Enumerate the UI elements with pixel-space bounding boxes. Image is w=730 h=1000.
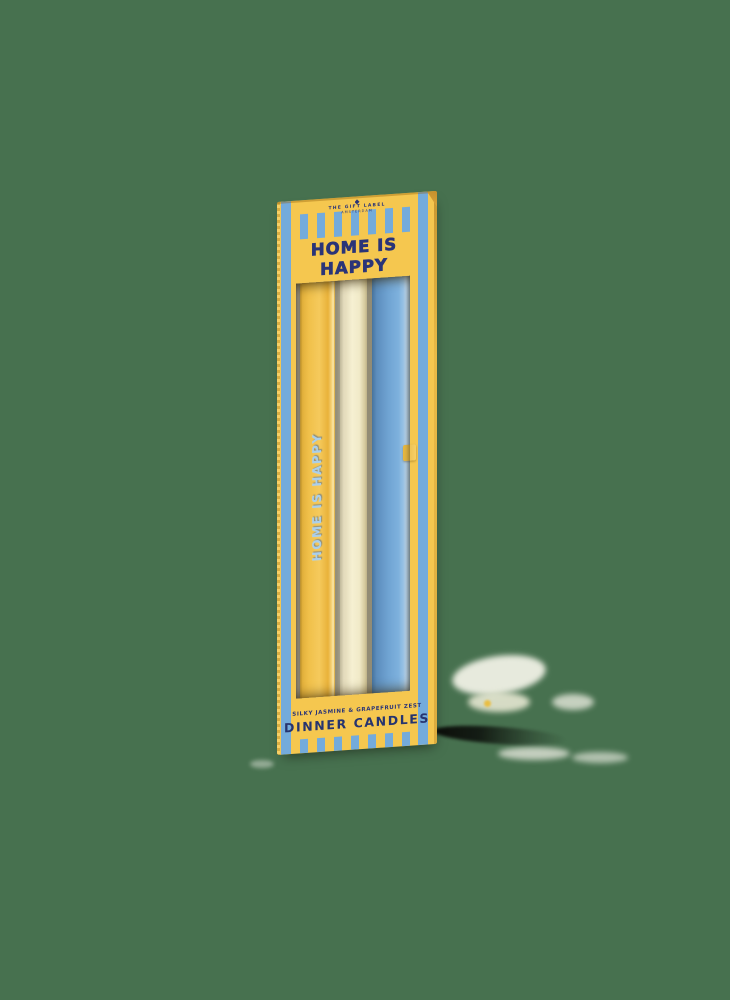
edge-stripe-right [418,191,428,745]
reflection-blob [572,752,628,763]
reflection-blob [498,747,570,760]
candle-cream [340,279,367,696]
cast-shadow [433,722,568,748]
stripe-band-bottom [291,731,418,754]
candle-box: THE GIFT LABEL AMSTERDAM HOME IS HAPPY H… [277,191,437,755]
candle-vertical-text: HOME IS HAPPY [310,422,326,573]
reflection-blob [468,692,530,712]
edge-stripe-left [281,201,291,755]
product-photo: THE GIFT LABEL AMSTERDAM HOME IS HAPPY H… [0,0,730,1000]
candle-yellow: HOME IS HAPPY [300,281,335,698]
reflection-blob [250,760,274,768]
flower-fold-tab [403,444,416,461]
box-front-face: THE GIFT LABEL AMSTERDAM HOME IS HAPPY H… [277,191,437,755]
candle-blue [372,276,410,694]
box-side-bevel [434,191,437,744]
box-window: HOME IS HAPPY [296,276,410,699]
reflection-speck [484,700,491,707]
reflection-blob [552,694,594,710]
